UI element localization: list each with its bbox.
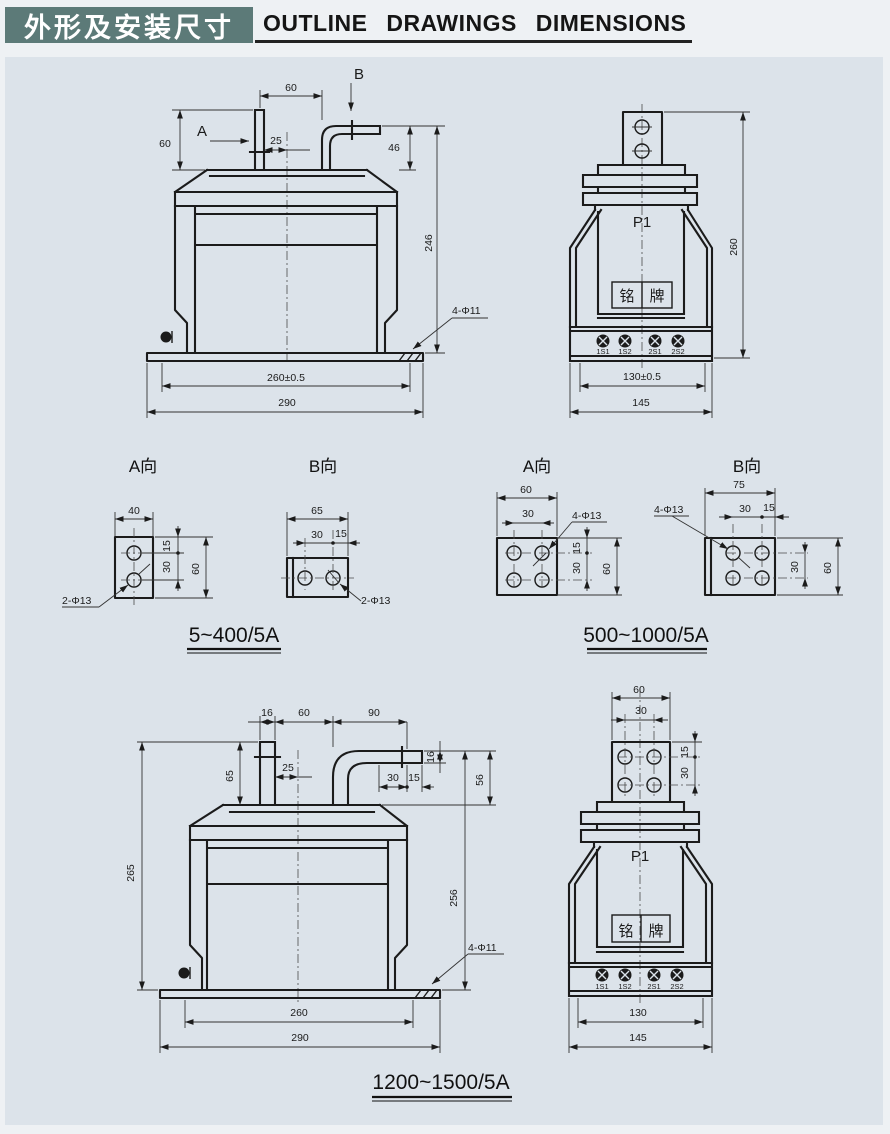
dimensions bbox=[569, 692, 712, 1053]
dim-b-pitch-y: 30 bbox=[789, 561, 801, 573]
terminal-pad-a bbox=[497, 538, 557, 595]
dim-height: 260 bbox=[728, 238, 740, 256]
dim-a-pitch-y: 30 bbox=[571, 562, 583, 574]
ground-terminal bbox=[179, 968, 190, 979]
secondary-terminal-screws bbox=[596, 969, 684, 982]
terminal-strip bbox=[569, 963, 712, 996]
dim-terminal-height: 65 bbox=[224, 770, 236, 782]
dim-mount-width: 260±0.5 bbox=[267, 372, 305, 384]
terminal-label: 1S1 bbox=[595, 982, 608, 991]
primary-terminal-b-bent bbox=[322, 121, 380, 170]
dim-terminal-gap: 60 bbox=[298, 707, 310, 719]
hole-callout-leader bbox=[549, 522, 572, 549]
dim-b-pitch-x: 30 bbox=[739, 503, 751, 515]
base-plate bbox=[147, 353, 423, 361]
dim-base-width: 290 bbox=[291, 1032, 309, 1044]
front-view-large: 16 60 90 65 25 30 15 16 56 256 265 4-Φ11… bbox=[125, 707, 504, 1053]
dim-a-width: 40 bbox=[128, 505, 140, 517]
mount-hole-hatch bbox=[399, 353, 421, 361]
technical-drawing-canvas: 60 B A 60 25 46 246 4-Φ11 260±0.5 290 bbox=[0, 0, 890, 1134]
holes-callout: 4-Φ13 bbox=[654, 504, 684, 516]
rating-caption-large: 1200~1500/5A bbox=[372, 1071, 509, 1094]
terminal-views-small: A向 B向 40 15 30 60 2-Φ13 65 30 15 bbox=[62, 457, 391, 653]
dim-hole-edge: 15 bbox=[679, 746, 691, 758]
dim-a-edge: 15 bbox=[161, 540, 173, 552]
dim-a-height: 60 bbox=[601, 563, 613, 575]
hole-callout-leader bbox=[99, 585, 128, 607]
dim-hole-edge: 15 bbox=[408, 772, 420, 784]
primary-terminal-a bbox=[255, 742, 280, 805]
dim-bend-height: 46 bbox=[388, 142, 400, 154]
holes-callout: 2-Φ13 bbox=[62, 595, 92, 607]
dim-a-width: 60 bbox=[520, 484, 532, 496]
terminal-label: 2S2 bbox=[671, 347, 684, 356]
dim-bar-width: 16 bbox=[261, 707, 273, 719]
dim-terminal-height: 60 bbox=[159, 138, 171, 150]
dim-center-offset: 25 bbox=[282, 762, 294, 774]
dim-b-height: 60 bbox=[822, 562, 834, 574]
rating-caption-small: 5~400/5A bbox=[189, 624, 280, 647]
dim-base-width: 145 bbox=[632, 397, 650, 409]
secondary-terminal-screws bbox=[597, 335, 685, 348]
dim-a-edge: 15 bbox=[571, 542, 583, 554]
dim-bend-height: 56 bbox=[474, 774, 486, 786]
p1-label: P1 bbox=[633, 214, 651, 231]
terminal-strip bbox=[570, 327, 712, 361]
body-roof bbox=[175, 170, 397, 206]
hole-callout-leader bbox=[672, 516, 728, 549]
dim-a-height: 60 bbox=[190, 563, 202, 575]
terminal-views-medium: A向 B向 60 30 4-Φ13 15 30 60 bbox=[497, 457, 843, 653]
dim-hole-pitch-y: 30 bbox=[679, 767, 691, 779]
side-view-large: 60 30 15 30 P1 铭 牌 1S1 1S2 2S1 2S2 130 1… bbox=[569, 684, 712, 1053]
dim-a-pitch-x: 30 bbox=[522, 508, 534, 520]
terminal-label: 2S1 bbox=[647, 982, 660, 991]
body-roof bbox=[190, 805, 407, 840]
base-plate bbox=[160, 990, 440, 998]
view-a-title: A向 bbox=[523, 457, 551, 476]
terminal-pad-b bbox=[287, 558, 348, 597]
nameplate-text: 牌 bbox=[649, 288, 664, 305]
dim-arm-length: 90 bbox=[368, 707, 380, 719]
mount-holes-callout: 4-Φ11 bbox=[452, 305, 481, 317]
hole-callout-leader bbox=[413, 318, 452, 349]
dim-a-pitch: 30 bbox=[161, 561, 173, 573]
hole-callout-leader bbox=[340, 584, 361, 601]
body-shell bbox=[190, 840, 407, 990]
view-b-title: B向 bbox=[733, 457, 761, 476]
side-view-small: P1 铭 牌 1S1 1S2 2S1 2S2 260 130±0.5 145 bbox=[570, 104, 750, 418]
dim-hole-pitch-x: 30 bbox=[635, 705, 647, 717]
nameplate-text: 铭 bbox=[618, 923, 633, 940]
nameplate-text: 牌 bbox=[648, 923, 663, 940]
holes-callout: 2-Φ13 bbox=[361, 595, 391, 607]
view-b-title: B向 bbox=[309, 457, 337, 476]
terminal-label: 1S2 bbox=[618, 982, 631, 991]
dim-base-width: 145 bbox=[629, 1032, 647, 1044]
terminal-label: 1S1 bbox=[596, 347, 609, 356]
dim-plate-width: 60 bbox=[633, 684, 645, 696]
terminal-label: 1S2 bbox=[618, 347, 631, 356]
hole-callout-leader bbox=[432, 954, 468, 984]
dim-mount-width: 260 bbox=[290, 1007, 308, 1019]
view-b-label: B bbox=[354, 66, 364, 83]
dim-top-width: 60 bbox=[285, 82, 297, 94]
dim-mount-width: 130±0.5 bbox=[623, 371, 661, 383]
dim-hole-pitch: 30 bbox=[387, 772, 399, 784]
rating-caption-medium: 500~1000/5A bbox=[583, 624, 709, 647]
nameplate-text: 铭 bbox=[619, 288, 634, 305]
view-a-title: A向 bbox=[129, 457, 157, 476]
dim-height-left: 265 bbox=[125, 864, 137, 882]
terminal-label: 2S2 bbox=[670, 982, 683, 991]
dim-b-pitch: 30 bbox=[311, 529, 323, 541]
dim-b-width: 75 bbox=[733, 479, 745, 491]
ground-terminal bbox=[161, 332, 172, 343]
mount-hole-hatch bbox=[415, 990, 437, 998]
dim-mount-width: 130 bbox=[629, 1007, 647, 1019]
dim-b-width: 65 bbox=[311, 505, 323, 517]
primary-terminal-a bbox=[250, 110, 269, 170]
body-shell bbox=[175, 206, 397, 353]
front-view-small: 60 B A 60 25 46 246 4-Φ11 260±0.5 290 bbox=[147, 66, 488, 418]
top-cap-ribs bbox=[583, 165, 697, 210]
dim-bar-thickness: 16 bbox=[425, 751, 437, 763]
p1-label: P1 bbox=[631, 848, 649, 865]
dim-center-offset: 25 bbox=[270, 135, 282, 147]
dim-b-edge: 15 bbox=[335, 528, 347, 540]
dim-total-height: 246 bbox=[423, 234, 435, 252]
holes-callout: 4-Φ13 bbox=[572, 510, 602, 522]
terminal-label: 2S1 bbox=[648, 347, 661, 356]
dim-height-right: 256 bbox=[448, 889, 460, 907]
dim-base-width: 290 bbox=[278, 397, 296, 409]
dim-b-edge-x: 15 bbox=[763, 502, 775, 514]
view-a-label: A bbox=[197, 123, 207, 140]
mount-holes-callout: 4-Φ11 bbox=[468, 942, 497, 954]
